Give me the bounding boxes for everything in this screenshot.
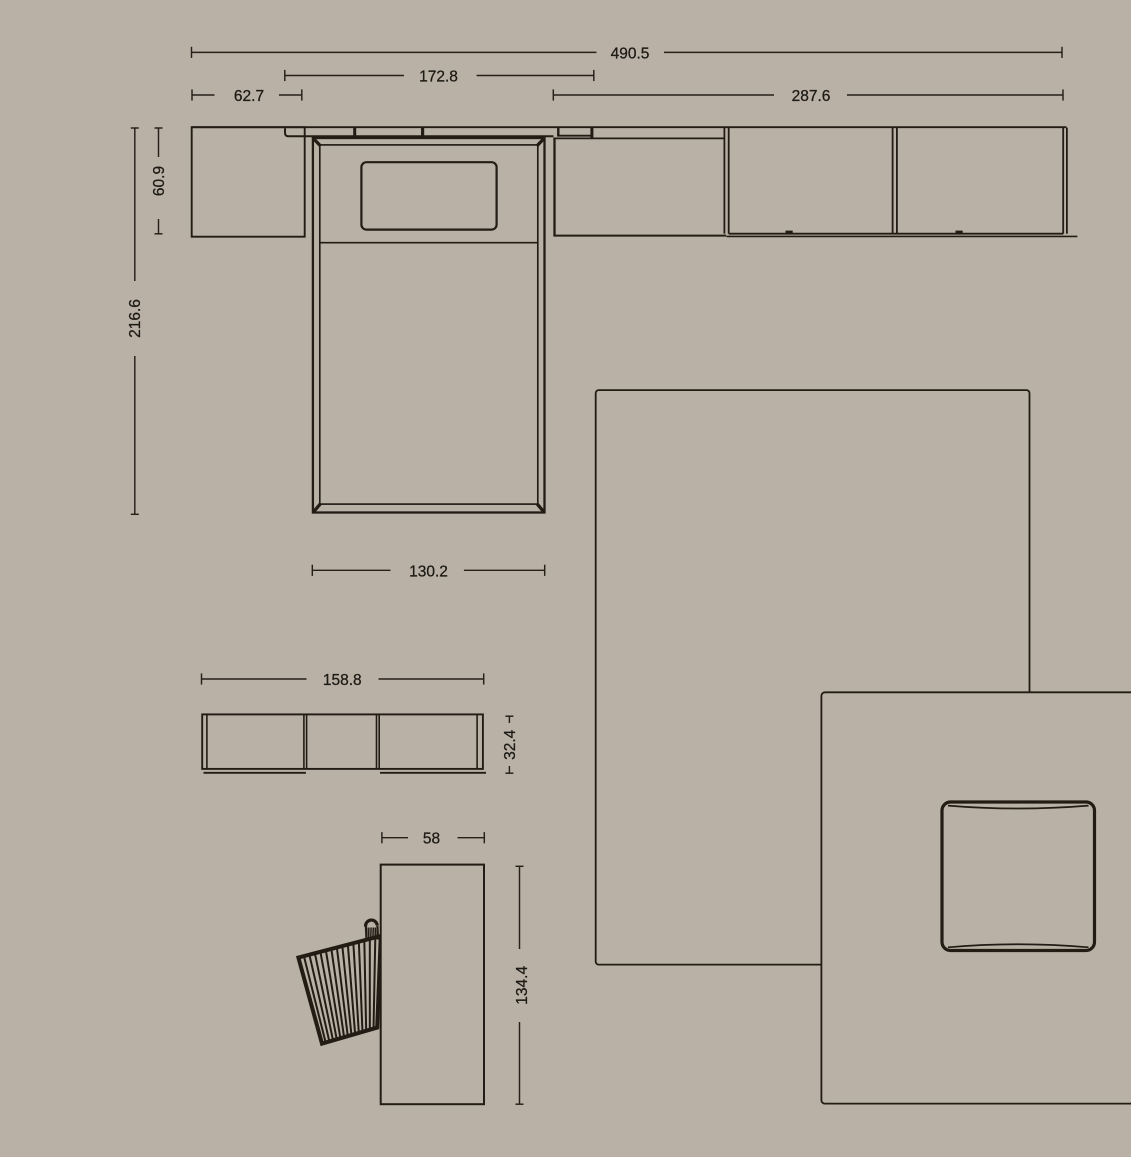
svg-text:158.8: 158.8	[323, 672, 362, 689]
svg-text:134.4: 134.4	[514, 966, 531, 1005]
svg-text:172.8: 172.8	[419, 69, 458, 86]
svg-text:60.9: 60.9	[151, 166, 168, 196]
svg-text:130.2: 130.2	[409, 563, 448, 580]
svg-text:490.5: 490.5	[611, 45, 650, 62]
svg-text:62.7: 62.7	[234, 88, 264, 105]
svg-text:32.4: 32.4	[502, 729, 519, 760]
svg-text:58: 58	[423, 831, 440, 848]
svg-text:287.6: 287.6	[792, 88, 831, 105]
svg-text:216.6: 216.6	[127, 299, 144, 338]
